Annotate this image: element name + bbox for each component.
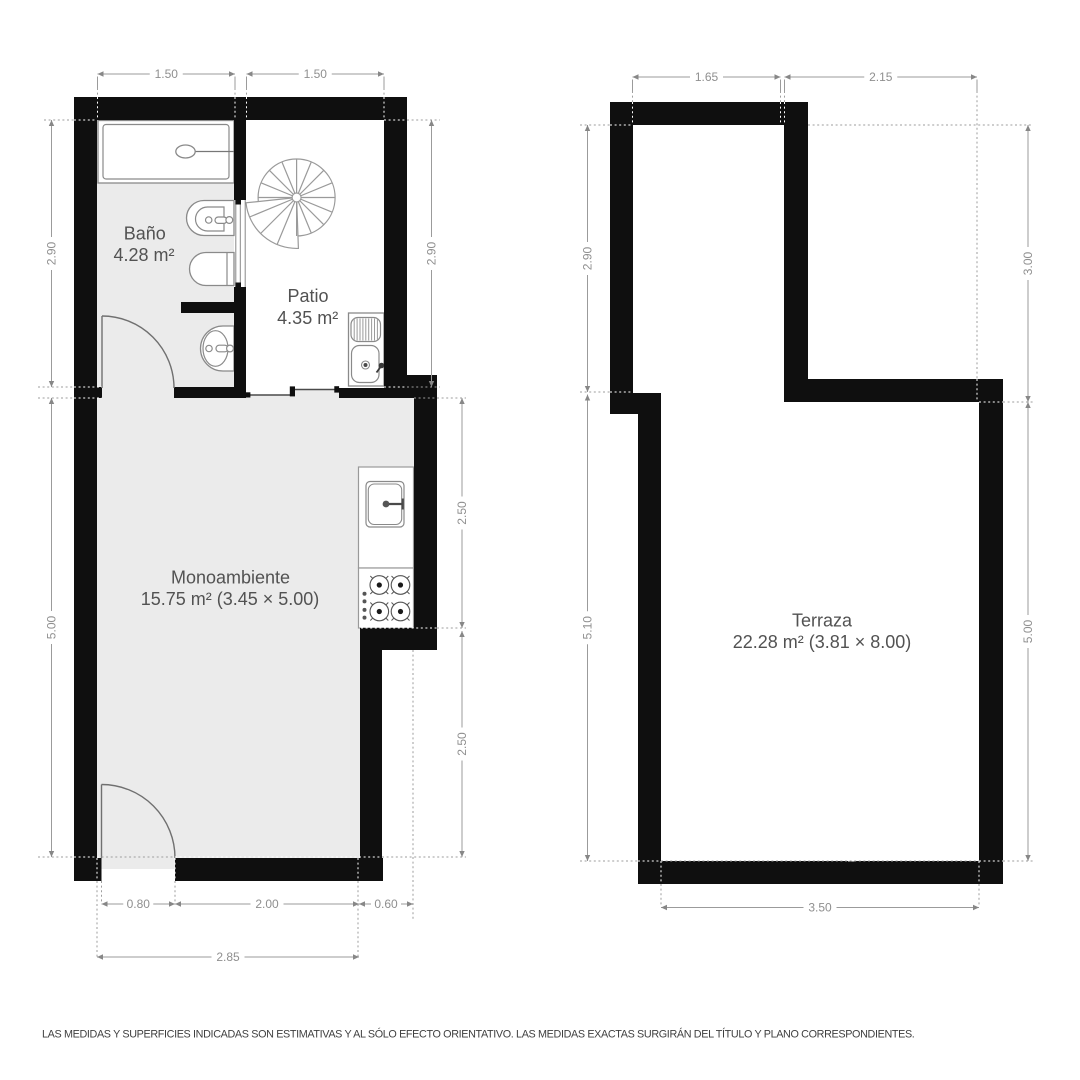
svg-text:3.00: 3.00 bbox=[1021, 251, 1035, 275]
svg-text:Terraza: Terraza bbox=[792, 611, 853, 631]
svg-text:5.00: 5.00 bbox=[45, 615, 59, 639]
svg-text:5.00: 5.00 bbox=[1021, 619, 1035, 643]
svg-text:2.90: 2.90 bbox=[45, 241, 59, 265]
svg-text:2.50: 2.50 bbox=[455, 501, 469, 525]
svg-text:22.28 m² (3.81 × 8.00): 22.28 m² (3.81 × 8.00) bbox=[733, 632, 912, 652]
svg-text:2.15: 2.15 bbox=[869, 70, 893, 84]
svg-text:2.85: 2.85 bbox=[216, 950, 240, 964]
svg-text:Patio: Patio bbox=[287, 286, 328, 306]
svg-text:4.28 m²: 4.28 m² bbox=[113, 245, 174, 265]
svg-text:1.50: 1.50 bbox=[155, 67, 179, 81]
svg-text:Baño: Baño bbox=[124, 224, 166, 244]
svg-text:15.75 m² (3.45 × 5.00): 15.75 m² (3.45 × 5.00) bbox=[141, 589, 320, 609]
svg-text:0.80: 0.80 bbox=[127, 897, 151, 911]
svg-text:Monoambiente: Monoambiente bbox=[171, 568, 290, 588]
svg-text:2.50: 2.50 bbox=[455, 732, 469, 756]
svg-text:2.90: 2.90 bbox=[581, 246, 595, 270]
svg-text:5.10: 5.10 bbox=[581, 616, 595, 640]
svg-text:0.60: 0.60 bbox=[374, 897, 398, 911]
svg-text:3.50: 3.50 bbox=[808, 901, 832, 915]
svg-text:1.65: 1.65 bbox=[695, 70, 719, 84]
svg-text:2.00: 2.00 bbox=[255, 897, 279, 911]
svg-text:2.90: 2.90 bbox=[425, 241, 439, 265]
svg-text:LAS MEDIDAS Y SUPERFICIES INDI: LAS MEDIDAS Y SUPERFICIES INDICADAS SON … bbox=[42, 1028, 915, 1041]
svg-text:4.35 m²: 4.35 m² bbox=[277, 308, 338, 328]
svg-text:1.50: 1.50 bbox=[304, 67, 328, 81]
